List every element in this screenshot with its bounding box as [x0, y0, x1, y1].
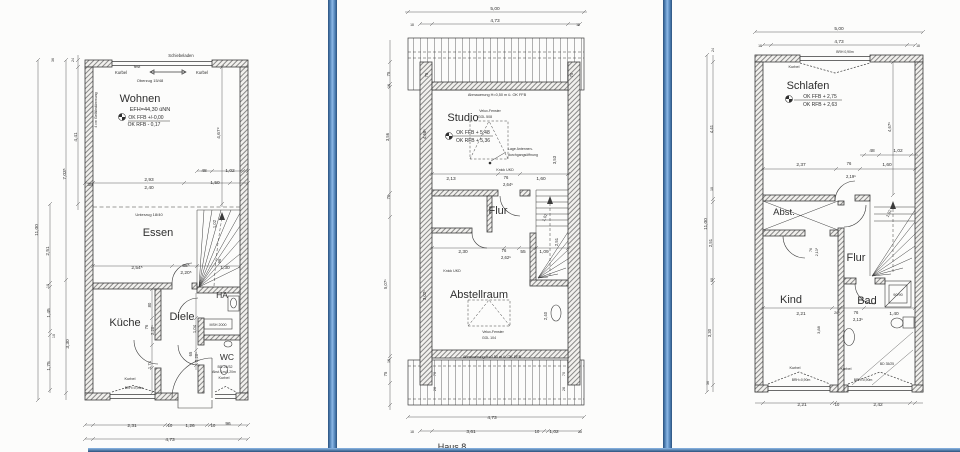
og-dim-10c: 10	[835, 402, 840, 407]
eg-dim-24-top: 24	[71, 58, 75, 62]
og-dim-48: 48	[869, 148, 875, 154]
dg-dim-76-l: 76	[386, 194, 391, 199]
og-room-abst: Abst.	[773, 207, 795, 218]
dg-note-abmauerung-top: Abmauerung H=0,50 m ü. OK FFB	[468, 93, 527, 97]
dg-dim-160: 1,60	[536, 176, 546, 182]
dg-dim-213: 2,13	[446, 176, 456, 182]
dg-level-okffb: OK FFB + 5,48	[456, 130, 490, 136]
eg-dim-104: 1,04	[192, 324, 197, 333]
dg-dim-10-l2: 10	[387, 359, 391, 363]
dg-room-abstellraum: Abstellraum	[450, 289, 508, 301]
floorplan-sheet: SchiebeladenKurbelfestKurbelOberzug 15/4…	[0, 0, 960, 452]
og-label-kurbel-kind: Kurbel	[790, 366, 801, 370]
eg-dim-30: 30	[87, 182, 93, 188]
og-dim-10b: 10	[710, 278, 714, 282]
eg-dim-240: 2,40	[144, 185, 154, 191]
eg-dim-36-top: 36	[51, 58, 55, 62]
dg-dim-76a: 76	[504, 175, 509, 180]
eg-dim-441: 4,41	[73, 132, 79, 142]
eg-dim-80: 80	[147, 302, 152, 307]
og-dim-221a: 2,21	[796, 311, 806, 317]
og-room-flur: Flur	[847, 252, 866, 264]
eg-label-kurbel-kueche: Kurbel	[125, 377, 136, 381]
floorplan-drawing: SchiebeladenKurbelfestKurbelOberzug 15/4…	[0, 0, 960, 452]
eg-dim-10c: 10	[168, 423, 173, 428]
og-dim-213-door: 2,13⁵	[853, 317, 863, 322]
og-dim-24-top: 24	[711, 48, 715, 52]
og-dim-76-rot: 76	[809, 248, 813, 252]
dg-note-abmauerung-bottom: Abmauerung H=0,50 m ü. OK FFB	[463, 355, 522, 359]
dg-dim-251-stair: 2,51	[554, 237, 559, 246]
og-dim-473: 4,73	[834, 39, 844, 45]
eg-dim-48: 48	[201, 168, 207, 174]
eg-note-abst: Abst. 1m/1,20m	[212, 370, 236, 374]
dg-note-velux1b: GGL 508	[478, 115, 492, 119]
dg-dim-10-l1: 10	[387, 84, 391, 88]
eg-level-okrfb: OK RFB - 0,17	[128, 122, 161, 128]
dg-dim-55: 55	[520, 249, 526, 255]
dg-dim-302: 3,02⁵	[422, 290, 427, 300]
dg-dim-507: 5,07⁵	[383, 279, 388, 289]
dg-dim-76b: 76	[502, 248, 507, 253]
eg-note-gefaelle: 4 cm Gefälledämmung	[94, 92, 98, 127]
og-level-okffb: OK FFB + 2,75	[803, 94, 837, 100]
eg-dim-174: 1,74	[147, 360, 152, 369]
eg-dim-126: 1,26	[185, 423, 195, 429]
eg-dim-703: 7,03⁵	[62, 168, 68, 179]
dg-antenna-marker	[489, 152, 506, 164]
og-dim-213-rot: 2,13⁵	[815, 247, 819, 256]
page-divider-bar-left	[328, 0, 337, 452]
dg-stairs	[536, 190, 568, 278]
eg-level-okffb: OK FFB +/-0,00	[128, 115, 163, 121]
eg-note-bd: BD 25/32	[218, 365, 233, 369]
dg-note-velux2a: Velux-Fenster	[482, 330, 504, 334]
dg-dim-75-l2: 75	[383, 371, 388, 376]
og-dim-251: 2,51	[708, 238, 713, 247]
og-dim-330: 3,30	[707, 328, 712, 337]
og-dim-160: 1,60	[882, 162, 892, 168]
eg-dim-150: 1,50	[210, 180, 220, 186]
dg-room-flur: Flur	[489, 205, 508, 217]
og-label-kurbel-top: Kurbel	[789, 65, 800, 69]
eg-dim-220: 2,20⁵	[180, 270, 191, 276]
eg-dim-76-door: 76	[144, 324, 149, 329]
dg-note-antenne2: durchgangsöffnung	[508, 153, 538, 157]
og-dim-76a: 76	[847, 161, 852, 166]
dg-dim-10-b: 10	[535, 429, 540, 434]
dg-dim-473-bottom: 4,73	[487, 415, 497, 421]
dg-note-velux1a: Velux-Fenster	[479, 109, 501, 113]
og-room-schlafen: Schlafen	[787, 80, 830, 92]
eg-dim-10b: 10	[52, 334, 56, 338]
eg-label-oberzug: Oberzug 15/48	[137, 78, 164, 83]
og-dim-242: 2,42	[873, 402, 883, 408]
dg-dim-473-top: 4,73	[490, 18, 500, 24]
og-dim-1100: 11,00	[703, 218, 709, 230]
eg-dim-293: 2,93	[144, 177, 154, 183]
eg-dim-220b-door: 2,20⁵	[194, 352, 199, 362]
og-dim-10a: 10	[710, 187, 714, 191]
eg-label-kurbel-right: Kurbel	[196, 70, 208, 75]
og-note-shower: 90/90	[893, 293, 903, 297]
eg-dim-175: 1,75	[46, 361, 52, 371]
og-dim-441: 4,41	[709, 124, 714, 133]
dg-note-antenne1: Lage Antennen-	[508, 147, 534, 151]
eg-note-msh: MSH 2000	[210, 323, 227, 327]
eg-dim-254: 2,54⁵	[131, 265, 142, 271]
eg-label-kurbel-left: Kurbel	[115, 70, 127, 75]
eg-dim-102-stair: 1,02	[212, 219, 217, 228]
dg-dim-356: 3,56	[385, 132, 390, 141]
dg-level-okrfb: OK RFB + 5,36	[456, 138, 490, 144]
dg-dim-70-br: 70	[562, 372, 566, 376]
eg-label-schiebeladen: Schiebeladen	[168, 53, 194, 58]
dg-dim-26-bl: 26	[433, 387, 437, 391]
dg-mark-18-tr: 18	[576, 23, 580, 27]
eg-label-fest: fest	[134, 64, 141, 69]
eg-room-ha: HA	[216, 290, 228, 300]
og-label-kurbel-bad: Kurbel	[841, 367, 852, 371]
dg-dim-102-stair: 1,02	[541, 212, 549, 222]
dg-dim-109: 1,09	[539, 249, 549, 255]
og-dim-36-bottom: 36	[706, 381, 710, 385]
eg-room-essen: Essen	[143, 227, 174, 239]
og-dim-102: 1,02	[893, 148, 903, 154]
dg-note-knick1: Knick UKD	[496, 168, 514, 172]
og-dim-102-stair: 1,02	[885, 208, 893, 218]
dg-note-knick2: Knick UKD	[443, 269, 461, 273]
dg-dim-264: 2,64⁵	[503, 182, 513, 187]
dg-dim-102-b: 1,02	[549, 429, 559, 435]
og-level-okrfb: OK RFB + 2,63	[803, 102, 837, 108]
dg-dim-26-br: 26	[562, 387, 566, 391]
dg-mark-18-br: 18	[578, 430, 582, 434]
eg-dim-251: 2,51	[45, 246, 51, 256]
og-dim-388: 3,88	[816, 325, 821, 334]
plan-dachgeschoss	[388, 10, 587, 433]
og-dim-237: 2,37	[796, 162, 806, 168]
dg-dim-361: 3,61	[466, 429, 476, 435]
page-divider-bar-right	[663, 0, 672, 452]
og-dim-4679: 4,67⁹	[887, 122, 892, 132]
dg-mark-18-bl: 18	[410, 430, 414, 434]
eg-stairs	[197, 210, 240, 290]
eg-note-unterzug: Unterzug 18/40	[135, 212, 163, 217]
dg-dim-75-l1: 75	[386, 71, 391, 76]
eg-dim-130: 1,30	[220, 265, 230, 271]
dg-doors	[472, 196, 520, 248]
og-mark-18-tl: 18	[758, 44, 762, 48]
dg-dim-353: 3,53	[552, 155, 557, 164]
dg-fixtures	[551, 305, 561, 321]
dg-dim-75-tr: 75	[569, 72, 574, 77]
eg-dim-145: 1,45	[46, 308, 52, 318]
og-dim-26: 26⁵	[834, 311, 840, 315]
og-note-brh-top: BRH 0,90m	[836, 50, 854, 54]
eg-dim-96: 96	[225, 421, 231, 427]
eg-room-diele: Diele	[169, 311, 194, 323]
dg-room-studio: Studio	[447, 112, 478, 124]
eg-dim-102: 1,02	[225, 168, 235, 174]
eg-dim-10d: 10	[211, 423, 216, 428]
og-dim-221b: 2,21	[797, 402, 807, 408]
og-note-brh-bad: BRH=0,90m	[854, 378, 873, 382]
og-room-kind: Kind	[780, 294, 802, 306]
og-dim-140: 1,40	[889, 311, 899, 317]
og-dim-219: 2,19⁵	[846, 174, 856, 179]
dg-dim-262: 2,62⁵	[501, 255, 511, 260]
eg-dim-330: 3,30	[65, 339, 71, 349]
dg-dim-240: 2,40	[543, 311, 548, 320]
dg-note-velux2b: GGL 104	[482, 336, 496, 340]
dg-mark-18-tl: 18	[410, 23, 414, 27]
eg-room-kueche: Küche	[109, 317, 140, 329]
eg-dim-231: 2,31	[127, 423, 137, 429]
eg-dim-220-door: 2,20⁵	[150, 325, 155, 335]
eg-dim-473: 4,73	[165, 437, 175, 443]
dg-dim-230: 2,30	[458, 249, 468, 255]
eg-note-brh-kueche: BRH=0,90m	[125, 386, 144, 390]
eg-dim-65-door: 65	[188, 351, 193, 356]
dg-dim-75-tl: 75	[424, 72, 429, 77]
og-dim-500: 5,00	[834, 26, 844, 32]
eg-dim-4679: 4,67⁹	[216, 127, 222, 138]
og-note-bd: BD 35/25	[880, 362, 894, 366]
eg-room-wohnen: Wohnen	[120, 93, 161, 105]
dg-dim-500: 5,00	[490, 6, 500, 12]
eg-label-kurbel-wc: Kurbel	[219, 376, 230, 380]
og-mark-18-tr: 18	[916, 44, 920, 48]
eg-room-wc: WC	[220, 352, 234, 362]
eg-level-efh: EFH=44,30 üNN	[130, 107, 171, 113]
og-bath-fixtures	[844, 281, 915, 385]
og-dim-76b: 76	[854, 310, 859, 315]
og-stairs	[870, 201, 915, 276]
page-bottom-border-bar	[88, 448, 960, 452]
eg-dim-96-stair: 96	[217, 258, 222, 263]
eg-dim-10a: 10	[46, 284, 50, 288]
dg-dim-70-bl: 70	[433, 372, 437, 376]
og-room-bad: Bad	[857, 295, 877, 307]
eg-dim-88: 88⁵	[182, 263, 189, 269]
dg-dim-468: 4,68⁵	[422, 129, 427, 139]
eg-dim-1100: 11,00	[34, 224, 40, 236]
og-note-brh-kind: BRH=0,90m	[792, 378, 811, 382]
